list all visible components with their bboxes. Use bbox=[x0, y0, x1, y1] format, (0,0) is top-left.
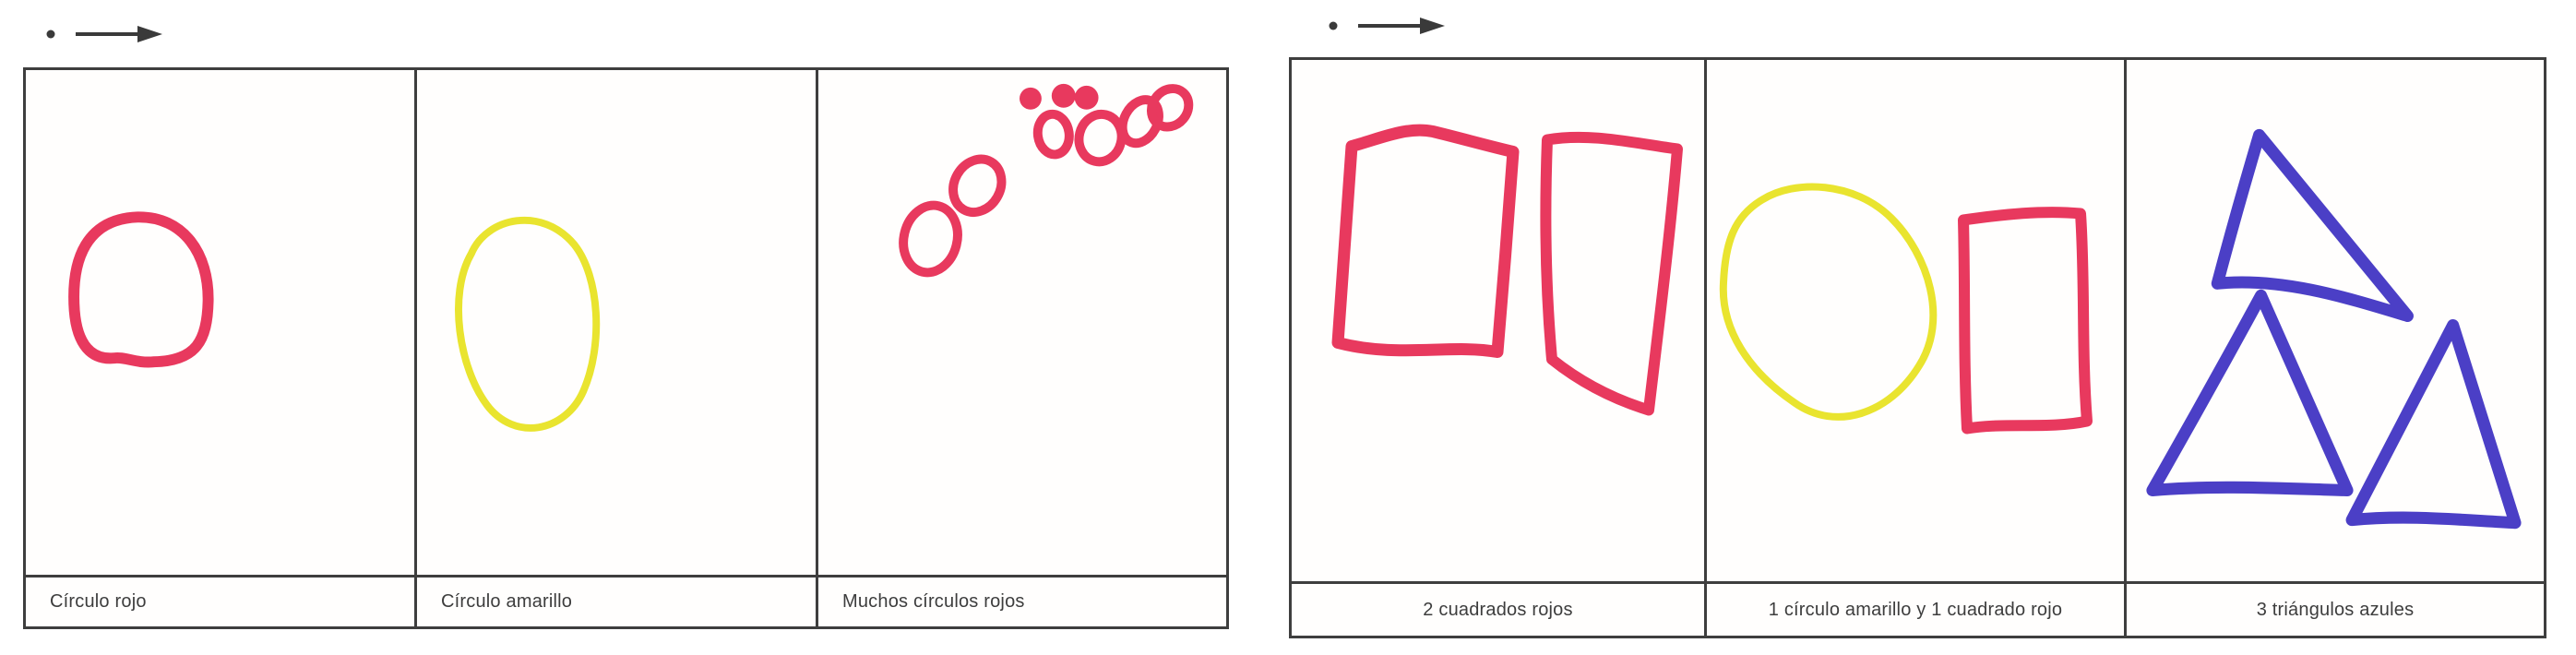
dot-icon bbox=[47, 30, 55, 39]
right-shape-table: 2 cuadrados rojos 1 círculo amarillo y 1… bbox=[1289, 57, 2546, 638]
yellow-circle-shape bbox=[459, 220, 596, 428]
caption-2-cuadrados-rojos: 2 cuadrados rojos bbox=[1292, 581, 1707, 636]
arrow-right-icon bbox=[1420, 18, 1445, 34]
red-square-shape bbox=[1338, 130, 1513, 351]
caption-text: Círculo rojo bbox=[50, 591, 147, 613]
caption-3-triangulos-azules: 3 triángulos azules bbox=[2127, 581, 2544, 636]
caption-text: Muchos círculos rojos bbox=[842, 591, 1025, 613]
caption-circulo-rojo: Círculo rojo bbox=[26, 575, 417, 626]
cell-three-blue-triangles bbox=[2127, 60, 2544, 581]
right-panel-direction-marker bbox=[1327, 13, 1451, 37]
cell-yellow-circle bbox=[417, 70, 818, 575]
red-square-shape bbox=[1545, 137, 1677, 411]
small-red-dot bbox=[1052, 84, 1076, 108]
yellow-circle-drawing bbox=[417, 70, 816, 575]
yellow-circle-shape bbox=[1723, 187, 1934, 417]
blue-triangle-shape bbox=[2217, 135, 2407, 316]
small-red-circle bbox=[1035, 113, 1072, 157]
small-red-dot bbox=[1075, 86, 1099, 110]
cell-yellow-circle-red-square bbox=[1707, 60, 2127, 581]
caption-text: 1 círculo amarillo y 1 cuadrado rojo bbox=[1769, 600, 2062, 621]
caption-text: 3 triángulos azules bbox=[2257, 600, 2415, 621]
dot-icon bbox=[1330, 22, 1338, 30]
many-red-circles-drawing bbox=[818, 70, 1226, 575]
small-red-circle bbox=[897, 199, 965, 278]
red-circle-drawing bbox=[26, 70, 414, 575]
caption-muchos-circulos-rojos: Muchos círculos rojos bbox=[818, 575, 1226, 626]
left-panel-direction-marker bbox=[44, 21, 169, 45]
red-circle-shape bbox=[74, 217, 209, 362]
cell-two-red-squares bbox=[1292, 60, 1707, 581]
cell-many-red-circles bbox=[818, 70, 1226, 575]
two-red-squares-drawing bbox=[1292, 60, 1704, 581]
small-red-dot bbox=[1020, 88, 1042, 110]
caption-text: Círculo amarillo bbox=[441, 591, 572, 613]
caption-1-circulo-1-cuadrado: 1 círculo amarillo y 1 cuadrado rojo bbox=[1707, 581, 2127, 636]
left-shape-table: Círculo rojo Círculo amarillo Muchos cír… bbox=[23, 67, 1229, 629]
caption-circulo-amarillo: Círculo amarillo bbox=[417, 575, 818, 626]
caption-text: 2 cuadrados rojos bbox=[1423, 600, 1572, 621]
blue-triangle-shape bbox=[2153, 295, 2347, 490]
blue-triangle-shape bbox=[2352, 326, 2515, 523]
small-red-circle bbox=[1074, 110, 1127, 166]
cell-red-circle bbox=[26, 70, 417, 575]
yellow-circle-red-square-drawing bbox=[1707, 60, 2124, 581]
red-square-shape bbox=[1963, 212, 2087, 428]
arrow-right-icon bbox=[137, 26, 162, 42]
three-blue-triangles-drawing bbox=[2127, 60, 2544, 581]
